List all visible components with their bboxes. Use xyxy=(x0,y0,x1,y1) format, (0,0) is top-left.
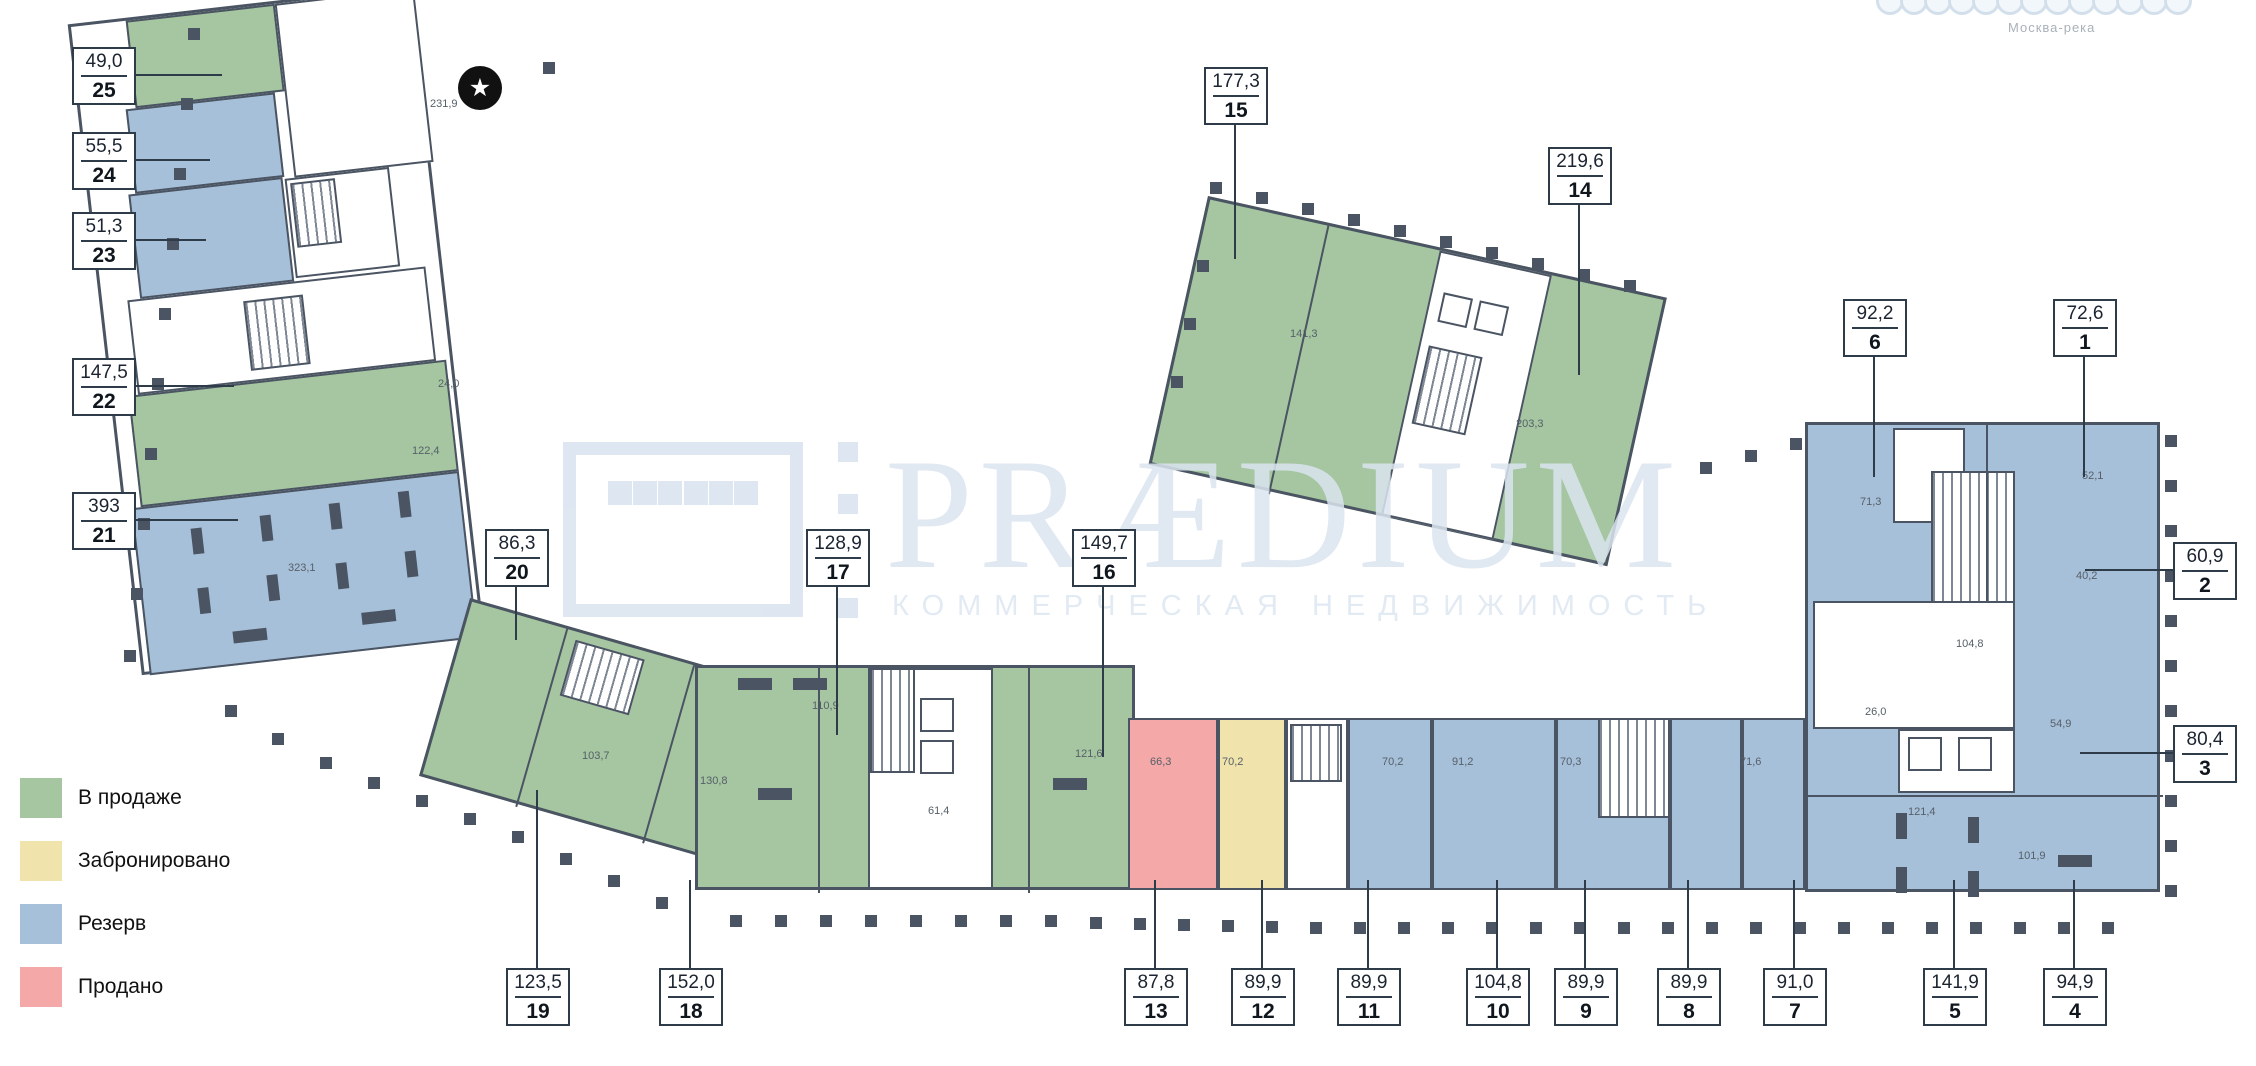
unit-callout-12[interactable]: 89,912 xyxy=(1231,968,1295,1026)
room-area-label: 141,3 xyxy=(1290,328,1318,340)
site-dot xyxy=(1171,376,1183,388)
site-dot xyxy=(225,705,237,717)
site-dot xyxy=(1134,918,1146,930)
room-area-label: 54,9 xyxy=(2050,718,2071,730)
unit-area: 60,9 xyxy=(2187,547,2224,566)
site-dot xyxy=(145,448,157,460)
site-dot xyxy=(416,795,428,807)
unit-area: 123,5 xyxy=(514,973,562,992)
unit-number: 1 xyxy=(2079,332,2091,353)
callout-leader-12 xyxy=(1261,880,1263,968)
room-area-label: 203,3 xyxy=(1516,418,1544,430)
unit-number: 15 xyxy=(1224,100,1247,121)
unit-number: 3 xyxy=(2199,758,2211,779)
room-area-label: 122,4 xyxy=(412,445,440,457)
site-dot xyxy=(2165,660,2177,672)
unit-area: 92,2 xyxy=(1857,304,1894,323)
site-dot xyxy=(1090,917,1102,929)
site-dot xyxy=(1184,318,1196,330)
site-dot xyxy=(560,853,572,865)
room-area-label: 91,2 xyxy=(1452,756,1473,768)
unit-callout-6[interactable]: 92,26 xyxy=(1843,299,1907,357)
callout-leader-18 xyxy=(689,880,691,968)
building-strip-green[interactable] xyxy=(695,665,1135,890)
callout-leader-23 xyxy=(134,239,206,241)
site-dot xyxy=(2165,795,2177,807)
unit-callout-21[interactable]: 39321 xyxy=(72,492,136,550)
legend-item-available: В продаже xyxy=(20,778,182,818)
site-dot xyxy=(1442,922,1454,934)
site-dot xyxy=(1838,922,1850,934)
site-dot xyxy=(1970,922,1982,934)
elevator xyxy=(920,698,954,732)
fraction-line xyxy=(2182,753,2228,755)
room-area-label: 130,8 xyxy=(700,775,728,787)
legend-swatch-reserved xyxy=(20,904,62,944)
site-dot xyxy=(1256,192,1268,204)
callout-leader-6 xyxy=(1873,355,1875,477)
site-dot xyxy=(656,897,668,909)
fraction-line xyxy=(81,75,127,77)
fraction-line xyxy=(81,520,127,522)
legend-item-booked: Забронировано xyxy=(20,841,230,881)
fraction-line xyxy=(1346,996,1392,998)
legend-item-reserved: Резерв xyxy=(20,904,146,944)
site-dot xyxy=(174,168,186,180)
site-dot xyxy=(159,308,171,320)
fraction-line xyxy=(1081,557,1127,559)
fraction-line xyxy=(494,557,540,559)
callout-leader-7 xyxy=(1793,880,1795,968)
site-dot xyxy=(1000,915,1012,927)
site-dot xyxy=(2102,922,2114,934)
site-dot xyxy=(820,915,832,927)
unit-number: 18 xyxy=(679,1001,702,1022)
site-dot xyxy=(775,915,787,927)
stairwell xyxy=(870,668,915,773)
callout-leader-11 xyxy=(1367,880,1369,968)
unit-number: 13 xyxy=(1144,1001,1167,1022)
site-dot xyxy=(1745,450,1757,462)
unit-area: 87,8 xyxy=(1138,973,1175,992)
legend-label: Продано xyxy=(78,975,163,999)
site-dot xyxy=(320,757,332,769)
legend-label: Резерв xyxy=(78,912,146,936)
callout-leader-21 xyxy=(134,519,238,521)
building-middle[interactable] xyxy=(1148,196,1666,566)
room-area-label: 101,9 xyxy=(2018,850,2046,862)
site-dot xyxy=(865,915,877,927)
unit-number: 25 xyxy=(92,80,115,101)
callout-leader-19 xyxy=(536,790,538,968)
star-icon: ★ xyxy=(469,73,491,103)
fraction-line xyxy=(81,160,127,162)
unit-number: 12 xyxy=(1251,1001,1274,1022)
unit-area: 177,3 xyxy=(1212,72,1260,91)
site-dot xyxy=(2165,525,2177,537)
room-area-label: 70,2 xyxy=(1382,756,1403,768)
unit-number: 6 xyxy=(1869,332,1881,353)
unit-callout-15[interactable]: 177,315 xyxy=(1204,67,1268,125)
fraction-line xyxy=(81,240,127,242)
unit-area: 89,9 xyxy=(1245,973,1282,992)
room-area-label: 110,9 xyxy=(812,700,839,712)
unit-number: 16 xyxy=(1092,562,1115,583)
river-label: Москва-река xyxy=(2008,20,2095,35)
unit-number: 21 xyxy=(92,525,115,546)
unit-number: 10 xyxy=(1486,1001,1509,1022)
unit-number: 19 xyxy=(526,1001,549,1022)
elevator xyxy=(1473,300,1509,336)
site-dot xyxy=(1624,280,1636,292)
room-area-label: 26,0 xyxy=(1865,706,1886,718)
unit-area: 94,9 xyxy=(2057,973,2094,992)
site-dot xyxy=(2165,480,2177,492)
site-dot xyxy=(1222,920,1234,932)
fraction-line xyxy=(1213,95,1259,97)
site-dot xyxy=(2165,705,2177,717)
site-dot xyxy=(1618,922,1630,934)
unit-number: 22 xyxy=(92,391,115,412)
site-dot xyxy=(512,831,524,843)
fraction-line xyxy=(1475,996,1521,998)
unit-callout-13[interactable]: 87,813 xyxy=(1124,968,1188,1026)
stairwell xyxy=(1598,718,1670,818)
unit-callout-16[interactable]: 149,716 xyxy=(1072,529,1136,587)
room-area-label: 66,3 xyxy=(1150,756,1171,768)
site-dot xyxy=(1794,922,1806,934)
stairwell xyxy=(560,640,645,716)
unit-area: 128,9 xyxy=(814,534,862,553)
room-area-label: 52,1 xyxy=(2082,470,2103,482)
site-dot xyxy=(124,650,136,662)
unit-area: 89,9 xyxy=(1671,973,1708,992)
room-area-label: 70,2 xyxy=(1222,756,1243,768)
site-dot xyxy=(1302,203,1314,215)
room-area-label: 323,1 xyxy=(288,562,316,574)
site-dot xyxy=(2058,922,2070,934)
unit-10[interactable] xyxy=(1432,718,1556,890)
unit-area: 104,8 xyxy=(1474,973,1522,992)
unit-callout-7[interactable]: 91,07 xyxy=(1763,968,1827,1026)
river-circle xyxy=(2164,0,2192,15)
site-dot xyxy=(1700,462,1712,474)
unit-area: 149,7 xyxy=(1080,534,1128,553)
fraction-line xyxy=(2182,570,2228,572)
unit-number: 24 xyxy=(92,165,115,186)
unit-area: 91,0 xyxy=(1777,973,1814,992)
fraction-line xyxy=(2052,996,2098,998)
site-dot xyxy=(464,813,476,825)
callout-leader-3 xyxy=(2080,752,2173,754)
fraction-line xyxy=(1852,327,1898,329)
unit-25[interactable] xyxy=(126,4,285,108)
unit-area: 51,3 xyxy=(86,217,123,236)
fraction-line xyxy=(515,996,561,998)
unit-number: 14 xyxy=(1568,180,1591,201)
legend-swatch-sold xyxy=(20,967,62,1007)
legend-swatch-available xyxy=(20,778,62,818)
site-dot xyxy=(2165,615,2177,627)
site-dot xyxy=(1706,922,1718,934)
site-dot xyxy=(272,733,284,745)
unit-number: 7 xyxy=(1789,1001,1801,1022)
site-dot xyxy=(543,62,555,74)
elevator xyxy=(1437,292,1473,328)
fraction-line xyxy=(1563,996,1609,998)
unit-number: 17 xyxy=(826,562,849,583)
unit-callout-9[interactable]: 89,99 xyxy=(1554,968,1618,1026)
site-dot xyxy=(2014,922,2026,934)
elevator xyxy=(1958,737,1992,771)
unit-number: 2 xyxy=(2199,575,2211,596)
legend-label: Забронировано xyxy=(78,849,230,873)
unit-callout-22[interactable]: 147,522 xyxy=(72,358,136,416)
unit-area: 393 xyxy=(88,497,120,516)
unit-callout-24[interactable]: 55,524 xyxy=(72,132,136,190)
callout-leader-22 xyxy=(134,385,234,387)
unit-callout-23[interactable]: 51,323 xyxy=(72,212,136,270)
unit-callout-1[interactable]: 72,61 xyxy=(2053,299,2117,357)
room-area-label: 40,2 xyxy=(2076,570,2097,582)
unit-callout-5[interactable]: 141,95 xyxy=(1923,968,1987,1026)
fraction-line xyxy=(2062,327,2108,329)
unit-area: 89,9 xyxy=(1351,973,1388,992)
callout-leader-24 xyxy=(134,159,210,161)
unit-callout-10[interactable]: 104,810 xyxy=(1466,968,1530,1026)
unit-area: 147,5 xyxy=(80,363,128,382)
fraction-line xyxy=(1772,996,1818,998)
unit-area: 80,4 xyxy=(2187,730,2224,749)
unit-area: 72,6 xyxy=(2067,304,2104,323)
legend-label: В продаже xyxy=(78,786,182,810)
watermark-tagline: КОММЕРЧЕСКАЯ НЕДВИЖИМОСТЬ xyxy=(892,590,1719,623)
callout-leader-13 xyxy=(1154,880,1156,968)
site-dot xyxy=(955,915,967,927)
unit-callout-2[interactable]: 60,92 xyxy=(2173,542,2237,600)
callout-leader-10 xyxy=(1496,880,1498,968)
callout-leader-25 xyxy=(134,74,222,76)
site-dot xyxy=(910,915,922,927)
room-area-label: 121,4 xyxy=(1908,806,1936,818)
unit-star-room xyxy=(275,0,434,178)
site-dot xyxy=(1440,236,1452,248)
unit-number: 11 xyxy=(1358,1001,1380,1022)
site-dot xyxy=(1662,922,1674,934)
unit-area: 49,0 xyxy=(86,52,123,71)
callout-leader-14 xyxy=(1578,203,1580,375)
unit-callout-11[interactable]: 89,911 xyxy=(1337,968,1401,1026)
room-area-label: 104,8 xyxy=(1956,638,1984,650)
callout-leader-4 xyxy=(2073,880,2075,968)
elevator xyxy=(1908,737,1942,771)
unit-callout-17[interactable]: 128,917 xyxy=(806,529,870,587)
callout-leader-2 xyxy=(2085,569,2173,571)
site-dot xyxy=(2165,840,2177,852)
unit-area: 152,0 xyxy=(667,973,715,992)
site-dot xyxy=(1750,922,1762,934)
legend-item-sold: Продано xyxy=(20,967,163,1007)
unit-number: 9 xyxy=(1580,1001,1592,1022)
callout-leader-17 xyxy=(836,585,838,735)
unit-23[interactable] xyxy=(128,177,294,299)
stairwell xyxy=(1931,471,2015,603)
room-area-label: 70,3 xyxy=(1560,756,1581,768)
site-dot xyxy=(2165,435,2177,447)
unit-callout-18[interactable]: 152,018 xyxy=(659,968,723,1026)
unit-number: 23 xyxy=(92,245,115,266)
callout-leader-8 xyxy=(1687,880,1689,968)
site-dot xyxy=(1266,921,1278,933)
room-area-label: 71,6 xyxy=(1740,756,1761,768)
unit-area: 89,9 xyxy=(1568,973,1605,992)
unit-7[interactable] xyxy=(1742,718,1805,890)
unit-12[interactable] xyxy=(1218,718,1286,890)
unit-13[interactable] xyxy=(1128,718,1218,890)
site-dot xyxy=(1532,258,1544,270)
site-dot xyxy=(1197,260,1209,272)
site-dot xyxy=(1486,247,1498,259)
elevator xyxy=(920,740,954,774)
unit-number: 5 xyxy=(1949,1001,1961,1022)
floor-plan-page: Москва-река ★ xyxy=(0,0,2256,1066)
site-dot xyxy=(608,875,620,887)
room-area-label: 61,4 xyxy=(928,805,949,817)
praedium-logo-mark xyxy=(563,442,803,617)
site-dot xyxy=(1348,214,1360,226)
callout-leader-1 xyxy=(2083,355,2085,477)
site-dot xyxy=(2165,885,2177,897)
site-dot xyxy=(730,915,742,927)
site-dot xyxy=(1530,922,1542,934)
fraction-line xyxy=(668,996,714,998)
callout-leader-16 xyxy=(1102,585,1104,757)
site-dot xyxy=(368,777,380,789)
site-dot xyxy=(188,28,200,40)
stairwell xyxy=(243,295,311,371)
unit-number: 4 xyxy=(2069,1001,2081,1022)
unit-callout-20[interactable]: 86,320 xyxy=(485,529,549,587)
room-area-label: 121,6 xyxy=(1075,748,1103,760)
room-area-label: 231,9 xyxy=(430,98,458,110)
site-dot xyxy=(181,98,193,110)
callout-leader-15 xyxy=(1234,123,1236,259)
fraction-line xyxy=(815,557,861,559)
unit-8[interactable] xyxy=(1670,718,1742,890)
site-dot xyxy=(152,378,164,390)
room-area-label: 71,3 xyxy=(1860,496,1881,508)
site-dot xyxy=(1354,922,1366,934)
fraction-line xyxy=(1932,996,1978,998)
unit-number: 20 xyxy=(505,562,528,583)
room-area-label: 24,0 xyxy=(438,378,459,390)
unit-area: 86,3 xyxy=(499,534,536,553)
unit-callout-3[interactable]: 80,43 xyxy=(2173,725,2237,783)
fraction-line xyxy=(1133,996,1179,998)
callout-leader-5 xyxy=(1953,880,1955,968)
site-dot xyxy=(1394,225,1406,237)
callout-leader-20 xyxy=(515,585,517,640)
site-dot xyxy=(1310,922,1322,934)
unit-callout-19[interactable]: 123,519 xyxy=(506,968,570,1026)
site-dot xyxy=(131,588,143,600)
unit-callout-14[interactable]: 219,614 xyxy=(1548,147,1612,205)
site-dot xyxy=(1045,915,1057,927)
unit-area: 219,6 xyxy=(1556,152,1604,171)
unit-callout-4[interactable]: 94,94 xyxy=(2043,968,2107,1026)
unit-area: 55,5 xyxy=(86,137,123,156)
fraction-line xyxy=(1240,996,1286,998)
unit-11[interactable] xyxy=(1348,718,1432,890)
site-dot xyxy=(1178,919,1190,931)
legend-swatch-booked xyxy=(20,841,62,881)
fraction-line xyxy=(1666,996,1712,998)
stairwell xyxy=(290,178,342,248)
fraction-line xyxy=(81,386,127,388)
room-area-label: 103,7 xyxy=(582,750,610,762)
fraction-line xyxy=(1557,175,1603,177)
unit-number: 8 xyxy=(1683,1001,1695,1022)
site-dot xyxy=(1790,438,1802,450)
corridor xyxy=(1813,601,2015,729)
callout-leader-9 xyxy=(1584,880,1586,968)
unit-callout-25[interactable]: 49,025 xyxy=(72,47,136,105)
site-dot xyxy=(1398,922,1410,934)
site-dot xyxy=(1210,182,1222,194)
site-dot xyxy=(1926,922,1938,934)
entrance-star-marker: ★ xyxy=(458,66,502,110)
building-right[interactable] xyxy=(1805,422,2160,892)
unit-area: 141,9 xyxy=(1931,973,1979,992)
site-dot xyxy=(1882,922,1894,934)
unit-callout-8[interactable]: 89,98 xyxy=(1657,968,1721,1026)
stairwell xyxy=(1290,724,1342,782)
